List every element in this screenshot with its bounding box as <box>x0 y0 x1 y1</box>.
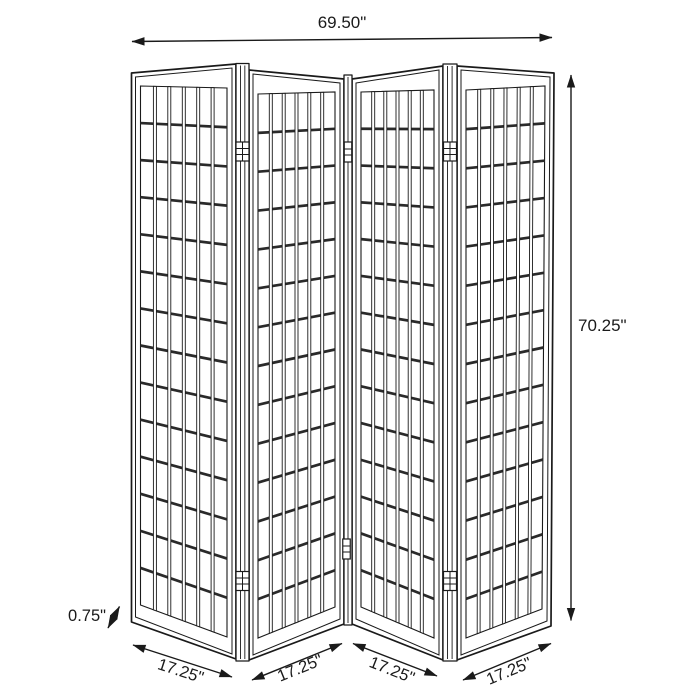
height-dimension-label: 70.25" <box>578 316 627 335</box>
panel-width-label-2: 17.25" <box>275 651 326 685</box>
room-divider-diagram: 69.50" 70.25" 0.75" 17.25" 17.25" 17.25"… <box>0 0 700 700</box>
hinge-icon <box>236 572 249 591</box>
panel-1-lattice <box>141 86 228 632</box>
panel-2 <box>249 70 344 660</box>
thickness-dimension: 0.75" <box>68 607 119 629</box>
width-dimension-label: 69.50" <box>318 13 367 32</box>
panel-1 <box>132 64 237 659</box>
panel-3 <box>352 66 443 660</box>
panel-4 <box>457 66 554 660</box>
dimension-diagram-canvas: 69.50" 70.25" 0.75" 17.25" 17.25" 17.25"… <box>0 0 700 700</box>
panel-3-lattice <box>361 90 434 633</box>
panel-width-label-4: 17.25" <box>484 654 535 689</box>
folding-screen-drawing <box>132 64 555 662</box>
width-dimension: 69.50" <box>132 13 552 42</box>
hinge-icon <box>444 142 457 161</box>
thickness-dimension-arrow <box>108 607 120 629</box>
hinge-icon <box>236 142 249 161</box>
height-dimension: 70.25" <box>571 75 627 621</box>
panel-2-lattice <box>258 92 335 633</box>
hinge-icon <box>344 142 352 162</box>
hinge-icon <box>444 572 457 591</box>
thickness-dimension-label: 0.75" <box>68 607 106 625</box>
hinge-icon <box>343 539 351 559</box>
width-dimension-arrow <box>132 38 552 42</box>
